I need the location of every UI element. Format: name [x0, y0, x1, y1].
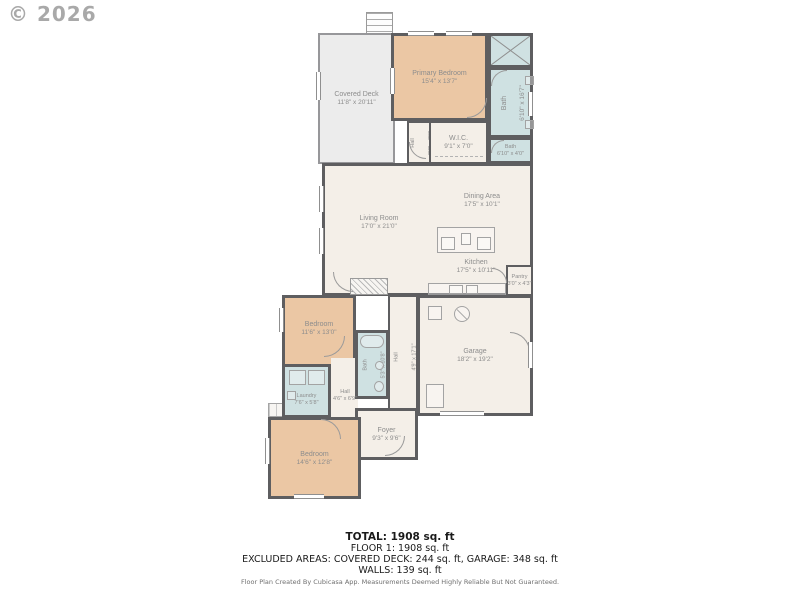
sink-icon [525, 120, 534, 129]
room-dims: 6'10" x 16'7" [519, 85, 526, 121]
toilet-icon [374, 381, 384, 392]
room-name: Bath [501, 95, 508, 109]
fan-blade-line [457, 309, 468, 320]
deck-slider-opening [390, 68, 395, 94]
room-name: W.I.C. [449, 134, 468, 143]
window [319, 228, 324, 254]
window [319, 186, 324, 212]
stove-icon [449, 285, 463, 294]
floor1-area-line: FLOOR 1: 1908 sq. ft [0, 543, 800, 554]
dryer-icon [308, 370, 325, 385]
area-summary: TOTAL: 1908 sq. ft FLOOR 1: 1908 sq. ft … [0, 531, 800, 576]
room-name: Garage [463, 347, 486, 356]
deck-stairs-icon [366, 12, 393, 35]
room-wic: W.I.C. 9'1" x 7'0" [429, 121, 488, 164]
x-cross-icon [491, 36, 530, 65]
room-name: Foyer [378, 426, 396, 435]
floor-plan-page: © 2026 Covered Deck 11'8" x 20'11" Prima… [0, 0, 800, 600]
water-heater-icon [428, 306, 442, 320]
room-dining-area-label: Dining Area 17'5" x 10'1" [441, 192, 523, 209]
room-name: Covered Deck [334, 90, 378, 99]
garage-door-opening [440, 411, 484, 416]
bathtub-icon [360, 335, 384, 348]
kitchen-island [437, 227, 495, 253]
window [279, 308, 284, 332]
excluded-areas-line: EXCLUDED AREAS: COVERED DECK: 244 sq. ft… [0, 554, 800, 565]
room-dims: 18'2" x 19'2" [457, 356, 493, 364]
dishwasher-icon [466, 285, 478, 294]
room-garage: Garage 18'2" x 19'2" [417, 295, 533, 416]
copyright-watermark: © 2026 [8, 2, 97, 26]
window [294, 494, 324, 499]
window [528, 92, 533, 116]
island-stool-icon [441, 237, 455, 250]
room-dims: 3'0" x 4'3" [507, 281, 531, 288]
washer-icon [289, 370, 306, 385]
island-sink-icon [461, 233, 471, 245]
sink-icon [375, 361, 384, 370]
disclaimer-note: Floor Plan Created By Cubicasa App. Meas… [0, 578, 800, 586]
room-name: Bath [505, 144, 516, 151]
island-stool-icon [477, 237, 491, 250]
shower-closet-area [488, 33, 533, 68]
room-dims: 14'6" x 12'8" [297, 459, 333, 467]
room-kitchen-label: Kitchen 17'5" x 10'11" [435, 258, 517, 275]
room-name: Bedroom [300, 450, 328, 459]
window [316, 72, 321, 100]
window [408, 31, 434, 36]
vertical-label-wrap: Hall 4'9" x 17'1" [390, 297, 416, 416]
utility-box-icon [426, 384, 444, 408]
towel-bar-icon [525, 76, 534, 85]
room-name: Primary Bedroom [412, 69, 466, 78]
room-label: Bedroom 11'6" x 13'0" [285, 320, 353, 337]
room-hall-mid: Hall 4'9" x 17'1" [388, 295, 418, 418]
room-hall-lower-label: Hall 4'6" x 6'9" [322, 389, 368, 403]
room-name: Hall [394, 352, 400, 361]
room-dims: 11'8" x 20'11" [337, 99, 375, 107]
hearth-hatch-icon [350, 278, 388, 295]
window [446, 31, 472, 36]
room-dims: 15'4" x 13'7" [422, 78, 458, 86]
room-covered-deck: Covered Deck 11'8" x 20'11" [318, 33, 395, 164]
room-name: Bath [363, 359, 369, 370]
window [265, 438, 270, 464]
window [528, 342, 533, 368]
closet-rod-icon [435, 156, 483, 157]
total-area-line: TOTAL: 1908 sq. ft [0, 531, 800, 543]
room-dims: 9'1" x 7'0" [444, 143, 472, 151]
walls-area-line: WALLS: 139 sq. ft [0, 565, 800, 576]
room-bedroom-bottom: Bedroom 14'6" x 12'8" [268, 417, 361, 499]
room-living-room-label: Living Room 17'0" x 21'0" [338, 214, 420, 231]
fan-icon [454, 306, 470, 322]
